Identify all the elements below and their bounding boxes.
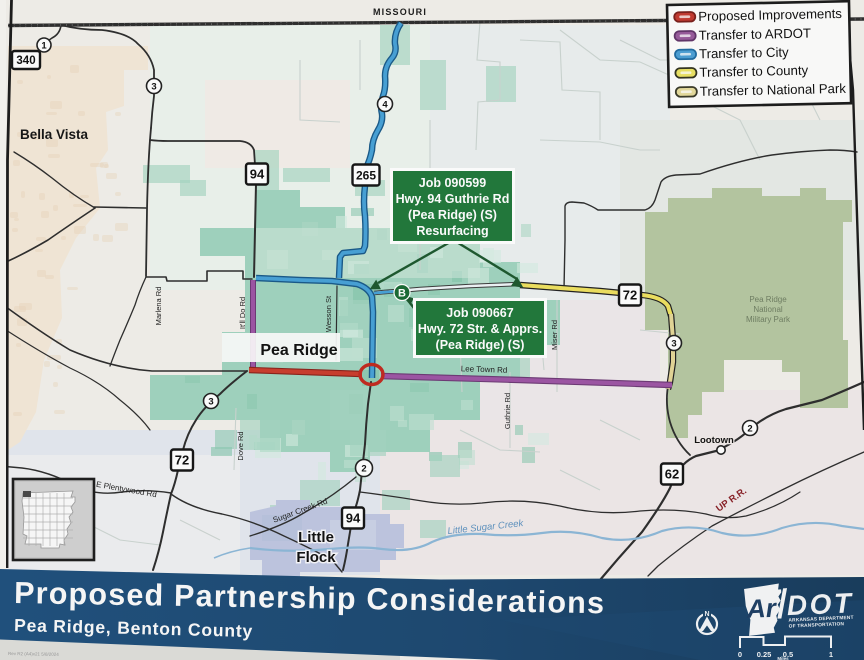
svg-text:National: National [753,305,783,314]
svg-text:3: 3 [151,81,156,92]
svg-text:0.25: 0.25 [757,650,772,659]
svg-text:It'll Do Rd: It'll Do Rd [238,297,247,329]
svg-text:Flock: Flock [296,549,336,566]
svg-text:Little: Little [298,529,334,546]
svg-text:265: 265 [356,168,376,182]
svg-text:Transfer to National Park: Transfer to National Park [700,81,847,99]
svg-text:2: 2 [361,463,366,474]
svg-text:1: 1 [41,40,47,51]
svg-text:4: 4 [382,99,388,110]
svg-text:Wesson St: Wesson St [324,295,333,332]
svg-text:Transfer to ARDOT: Transfer to ARDOT [698,26,811,43]
svg-text:Pea Ridge: Pea Ridge [260,342,337,359]
svg-text:72: 72 [623,288,637,303]
svg-text:Hwy. 94 Guthrie Rd: Hwy. 94 Guthrie Rd [396,192,510,206]
svg-text:Job 090667: Job 090667 [446,306,513,320]
svg-text:Miles: Miles [777,656,789,660]
svg-text:Proposed Improvements: Proposed Improvements [698,6,842,24]
svg-text:Dove Rd: Dove Rd [236,431,245,460]
svg-text:Marlena Rd: Marlena Rd [154,287,163,326]
svg-text:Job 090599: Job 090599 [419,176,486,190]
svg-text:Pea Ridge: Pea Ridge [749,295,787,304]
svg-text:(Pea Ridge) (S): (Pea Ridge) (S) [408,208,497,222]
svg-text:Miser Rd: Miser Rd [550,320,559,350]
svg-text:Bella Vista: Bella Vista [20,127,89,142]
svg-text:Lee Town Rd: Lee Town Rd [461,364,508,375]
svg-text:Lootown: Lootown [694,435,734,446]
svg-text:340: 340 [16,55,35,67]
svg-text:62: 62 [665,467,679,482]
svg-text:0: 0 [738,650,742,659]
svg-text:1: 1 [829,650,833,659]
svg-text:Transfer to County: Transfer to County [699,63,808,80]
svg-text:Resurfacing: Resurfacing [416,224,488,238]
svg-text:Hwy. 72 Str. & Apprs.: Hwy. 72 Str. & Apprs. [418,322,542,336]
svg-text:3: 3 [671,338,676,349]
svg-text:72: 72 [175,453,189,468]
svg-text:Military Park: Military Park [746,315,791,324]
svg-text:2: 2 [747,423,752,434]
svg-text:94: 94 [346,511,361,526]
svg-text:94: 94 [250,167,265,182]
svg-text:MISSOURI: MISSOURI [373,7,427,17]
svg-text:Rev R2 (A4)x21 5/8/2024: Rev R2 (A4)x21 5/8/2024 [8,651,59,657]
svg-text:3: 3 [208,396,213,407]
svg-text:Transfer to City: Transfer to City [699,45,789,62]
svg-text:B: B [398,288,406,300]
svg-text:(Pea Ridge) (S): (Pea Ridge) (S) [436,338,525,352]
svg-text:Guthrie Rd: Guthrie Rd [503,393,512,429]
svg-text:Ar: Ar [745,593,778,624]
